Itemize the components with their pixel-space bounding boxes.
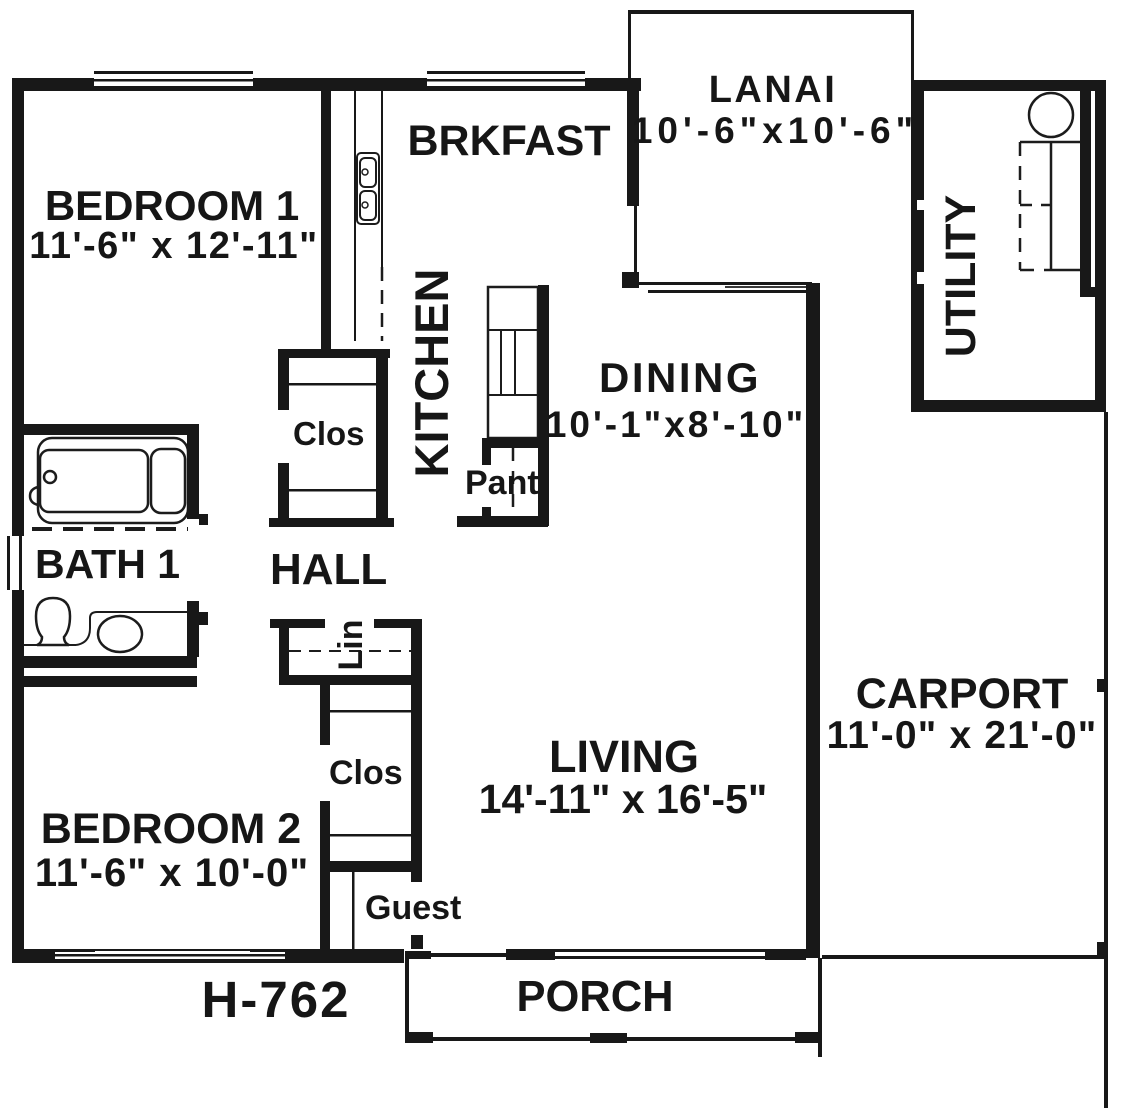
svg-text:HALL: HALL (270, 545, 387, 594)
svg-text:CARPORT: CARPORT (856, 670, 1069, 718)
svg-text:Clos: Clos (293, 415, 365, 452)
svg-text:BEDROOM 2: BEDROOM 2 (41, 805, 301, 853)
svg-text:Lin: Lin (332, 620, 370, 671)
svg-text:H-762: H-762 (202, 971, 351, 1028)
svg-text:LANAI: LANAI (709, 69, 838, 111)
svg-text:10'-1"x8'-10": 10'-1"x8'-10" (546, 404, 806, 445)
svg-text:11'-0" x 21'-0": 11'-0" x 21'-0" (827, 714, 1098, 757)
svg-text:11'-6" x 12'-11": 11'-6" x 12'-11" (29, 225, 318, 267)
svg-text:14'-11" x 16'-5": 14'-11" x 16'-5" (479, 776, 768, 822)
svg-text:UTILITY: UTILITY (937, 195, 985, 357)
svg-text:BATH 1: BATH 1 (35, 541, 180, 587)
svg-text:Clos: Clos (329, 754, 403, 792)
svg-text:Guest: Guest (365, 889, 461, 927)
svg-text:BEDROOM 1: BEDROOM 1 (45, 182, 299, 229)
svg-text:LIVING: LIVING (549, 731, 699, 782)
svg-text:Pant: Pant (465, 464, 539, 502)
svg-text:BRKFAST: BRKFAST (407, 117, 610, 165)
svg-text:10'-6"x10'-6": 10'-6"x10'-6" (632, 110, 918, 151)
svg-text:DINING: DINING (599, 354, 761, 401)
svg-text:PORCH: PORCH (516, 973, 673, 1021)
svg-text:11'-6" x 10'-0": 11'-6" x 10'-0" (35, 851, 309, 895)
svg-text:KITCHEN: KITCHEN (405, 269, 458, 478)
